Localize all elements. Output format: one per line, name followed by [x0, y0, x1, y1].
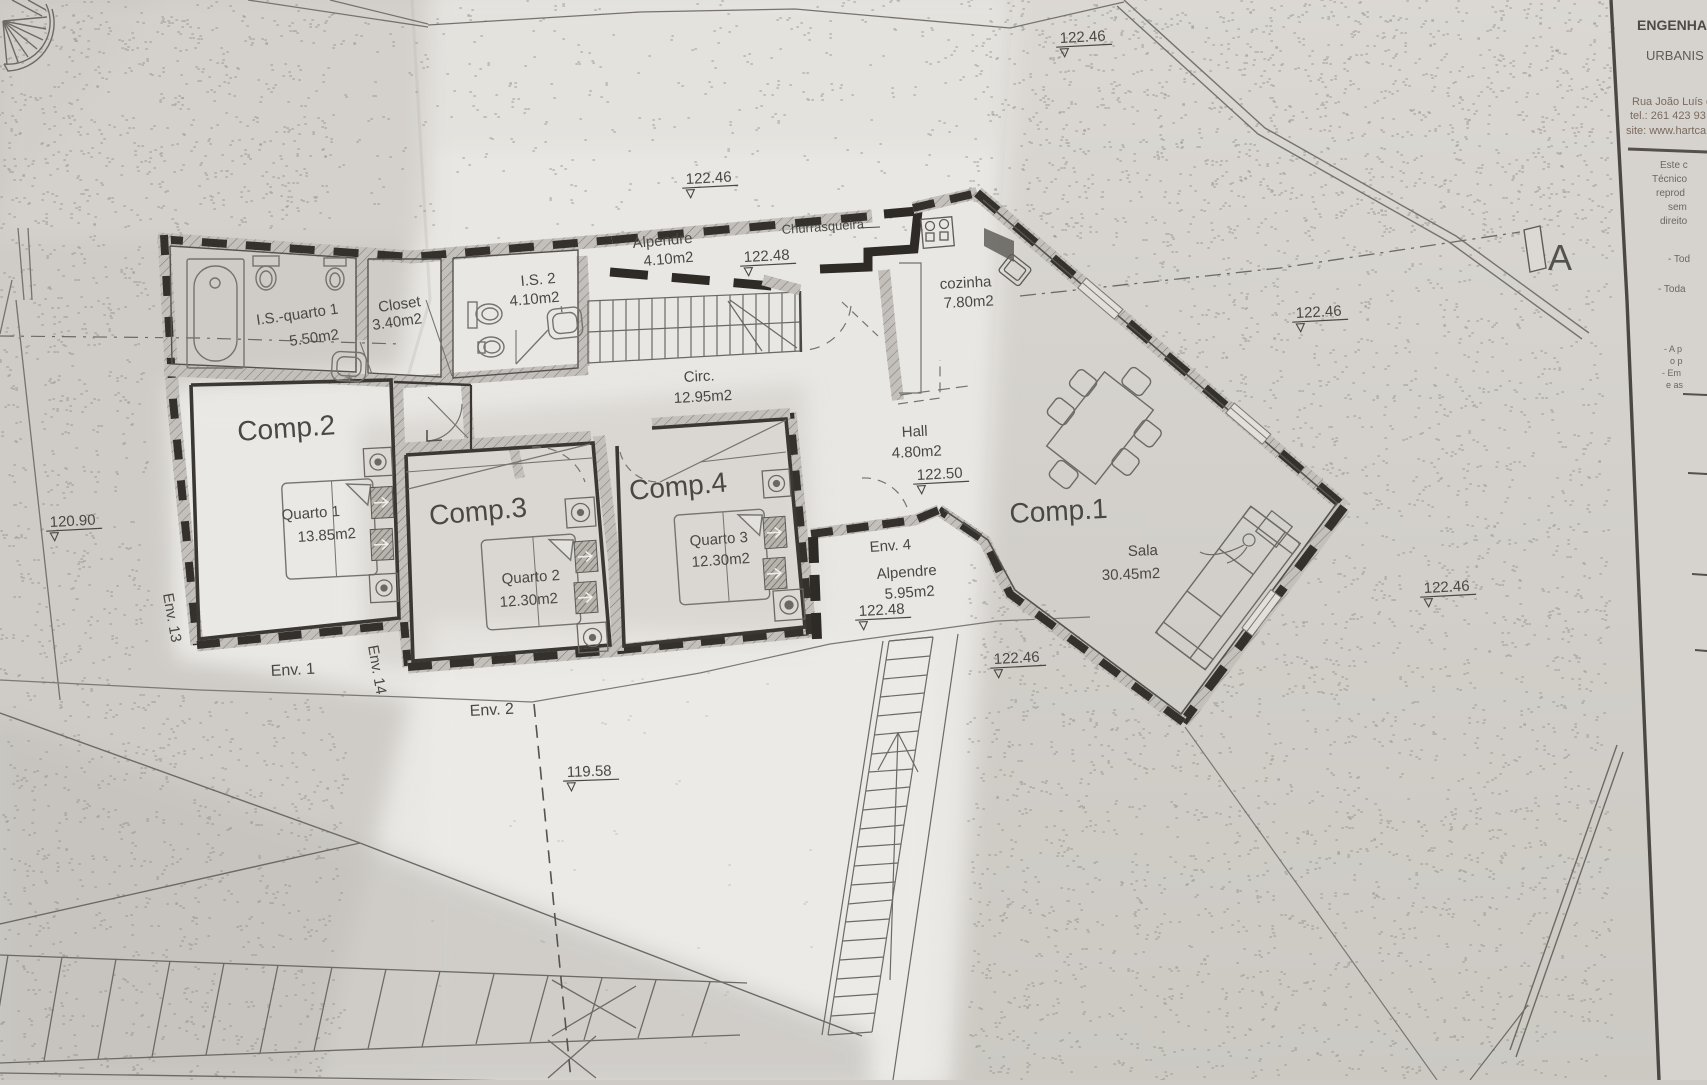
svg-text:Sala: Sala [1128, 542, 1159, 560]
svg-text:I.S. 2: I.S. 2 [520, 270, 556, 290]
svg-text:Env. 1: Env. 1 [270, 661, 315, 680]
svg-text:direito: direito [1660, 216, 1688, 227]
svg-text:tel.: 261 423 93: tel.: 261 423 93 [1630, 110, 1706, 122]
svg-text:Circ.: Circ. [683, 367, 715, 386]
svg-text:A: A [1548, 237, 1572, 278]
svg-text:120.90: 120.90 [49, 512, 96, 531]
svg-text:cozinha: cozinha [939, 273, 992, 293]
svg-text:122.46: 122.46 [1423, 578, 1470, 597]
svg-text:reprod: reprod [1656, 188, 1685, 199]
svg-text:Este c: Este c [1660, 160, 1688, 171]
svg-text:o p: o p [1670, 356, 1683, 366]
svg-text:122.48: 122.48 [743, 247, 790, 266]
svg-text:122.46: 122.46 [1295, 303, 1342, 322]
svg-text:Env. 4: Env. 4 [869, 536, 912, 556]
svg-text:12.95m2: 12.95m2 [673, 387, 732, 407]
svg-text:Rua João Luís c: Rua João Luís c [1632, 96, 1707, 108]
svg-text:122.50: 122.50 [916, 465, 963, 484]
svg-text:122.48: 122.48 [858, 601, 905, 620]
svg-text:122.46: 122.46 [1059, 28, 1106, 47]
svg-text:122.46: 122.46 [685, 169, 732, 188]
svg-text:Técnico: Técnico [1652, 174, 1687, 185]
svg-text:sem: sem [1668, 202, 1687, 213]
svg-text:- Toda: - Toda [1658, 284, 1686, 295]
svg-text:Comp.1: Comp.1 [1009, 493, 1109, 529]
svg-text:Env. 2: Env. 2 [469, 701, 514, 720]
svg-text:URBANIS: URBANIS [1646, 48, 1704, 63]
svg-text:e as: e as [1666, 380, 1684, 390]
svg-text:5.95m2: 5.95m2 [884, 583, 935, 603]
svg-text:7.80m2: 7.80m2 [943, 292, 994, 312]
svg-text:30.45m2: 30.45m2 [1102, 565, 1161, 584]
svg-text:- A p: - A p [1664, 344, 1682, 354]
svg-text:ENGENHA: ENGENHA [1637, 17, 1707, 33]
svg-text:122.46: 122.46 [993, 649, 1040, 668]
svg-text:4.80m2: 4.80m2 [891, 442, 942, 462]
svg-text:- Tod: - Tod [1668, 254, 1690, 265]
svg-text:Hall: Hall [901, 423, 928, 441]
svg-text:- Em: - Em [1662, 368, 1681, 378]
svg-text:site: www.hartca: site: www.hartca [1626, 125, 1707, 137]
svg-text:119.58: 119.58 [567, 762, 612, 781]
